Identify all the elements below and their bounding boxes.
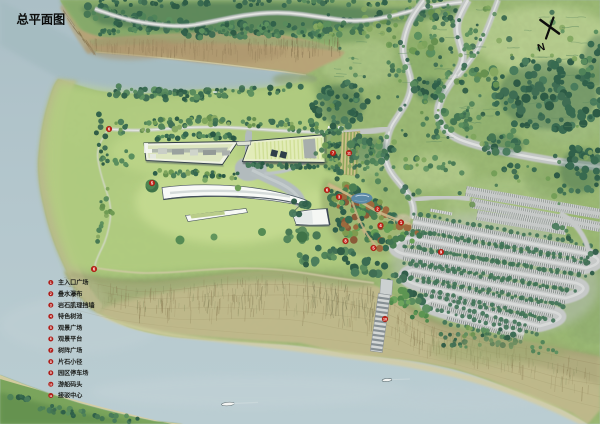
svg-text:总平面图: 总平面图	[17, 12, 66, 27]
svg-text:游船码头: 游船码头	[58, 380, 82, 388]
svg-text:8: 8	[50, 360, 52, 364]
svg-text:11: 11	[347, 151, 351, 155]
svg-text:10: 10	[49, 382, 52, 386]
svg-text:园区停车场: 园区停车场	[58, 369, 88, 377]
svg-text:树阵广场: 树阵广场	[58, 347, 82, 355]
svg-text:6: 6	[50, 337, 52, 341]
svg-text:3: 3	[50, 303, 52, 307]
svg-text:11: 11	[49, 394, 52, 398]
svg-text:1: 1	[50, 281, 52, 285]
svg-text:观景广场: 观景广场	[58, 324, 82, 332]
svg-text:叠水瀑布: 叠水瀑布	[58, 290, 82, 298]
svg-text:观景平台: 观景平台	[58, 335, 82, 343]
svg-text:主入口广场: 主入口广场	[58, 279, 88, 287]
svg-text:接驳中心: 接驳中心	[57, 392, 83, 400]
svg-text:2: 2	[50, 292, 52, 296]
svg-text:7: 7	[50, 349, 52, 353]
svg-text:岩石肌理挡墙: 岩石肌理挡墙	[57, 301, 95, 309]
svg-text:5: 5	[50, 326, 52, 330]
svg-text:10: 10	[383, 317, 387, 321]
svg-text:片石小径: 片石小径	[58, 358, 82, 366]
svg-text:9: 9	[50, 371, 52, 375]
svg-text:4: 4	[50, 315, 52, 319]
svg-text:特色树池: 特色树池	[58, 313, 82, 321]
